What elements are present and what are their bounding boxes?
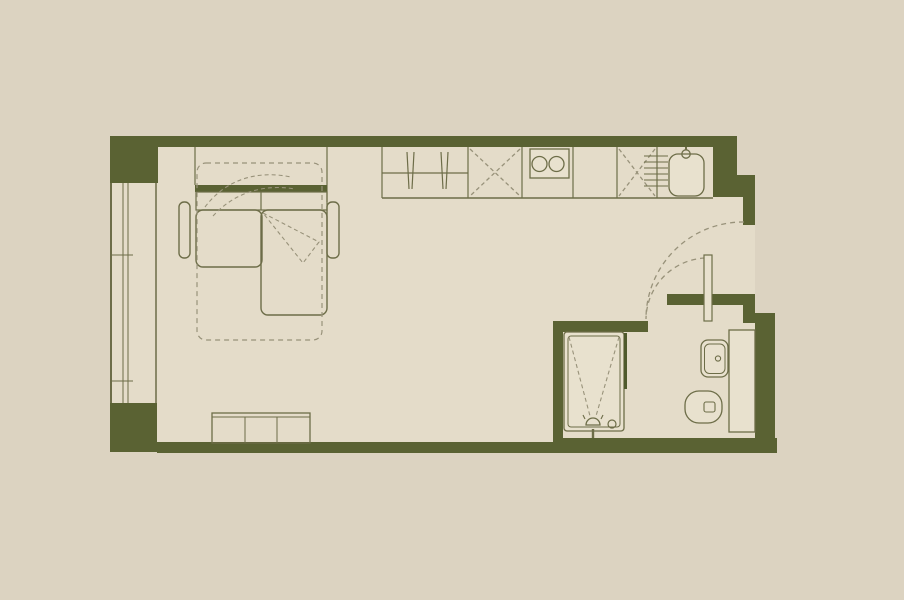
outside-patch-top-right bbox=[737, 126, 759, 177]
bottom-wall-bathroom bbox=[553, 438, 777, 453]
right-wall-lower bbox=[755, 313, 775, 443]
top-wall bbox=[110, 136, 737, 147]
bathroom-top-wall bbox=[553, 321, 648, 332]
bathroom-left-wall bbox=[553, 321, 563, 445]
floor-plan-canvas bbox=[0, 0, 904, 600]
entry-door-jamb bbox=[743, 197, 755, 225]
bottom-left-pier bbox=[110, 403, 157, 452]
vanity-counter bbox=[729, 330, 755, 432]
floor-plan-svg bbox=[0, 0, 904, 600]
bathroom-door-leaf bbox=[704, 255, 712, 321]
kitchen-sink-basin bbox=[669, 154, 704, 196]
right-wall-step bbox=[735, 175, 755, 197]
top-left-pier bbox=[110, 136, 158, 183]
right-wall-upper bbox=[713, 136, 737, 197]
shower-tray bbox=[564, 332, 624, 431]
floor-area bbox=[112, 126, 759, 452]
entry-stub-step bbox=[743, 294, 755, 323]
